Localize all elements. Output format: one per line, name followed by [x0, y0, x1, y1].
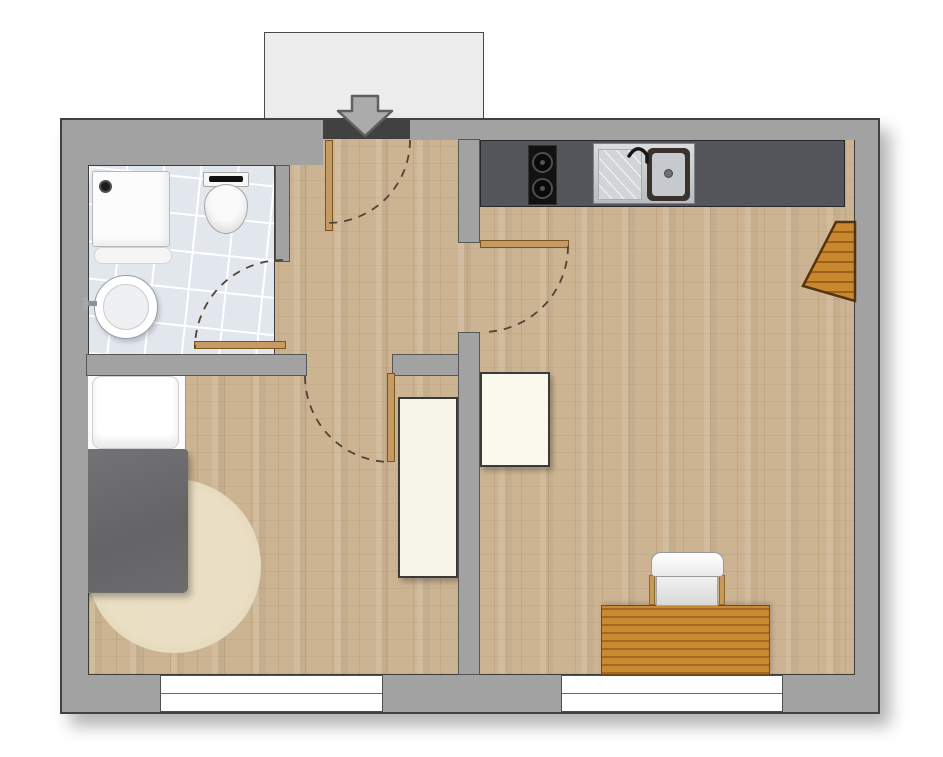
wall-central-lower	[458, 332, 480, 675]
wardrobe	[398, 397, 458, 578]
wall-east	[855, 120, 878, 712]
washbasin	[94, 275, 158, 339]
wall-central-upper	[458, 139, 480, 243]
sink-drain-icon	[664, 169, 673, 178]
wall-south-middle	[383, 675, 561, 712]
burner-icon	[532, 178, 553, 199]
floor-drain-icon	[99, 180, 112, 193]
chair-seat	[656, 574, 718, 606]
sink-basin	[647, 148, 690, 201]
bathroom-door-leaf	[194, 341, 286, 349]
burner-icon	[532, 152, 553, 173]
sink-basin-inner	[652, 153, 685, 196]
bath-mat	[94, 247, 172, 264]
desk	[601, 605, 770, 675]
wall-bathroom-south	[86, 354, 307, 376]
floor-plan	[0, 0, 943, 757]
basin-faucet-icon	[83, 297, 88, 310]
wall-south-left	[62, 675, 160, 712]
cooktop	[528, 145, 557, 205]
chair-armrest	[649, 575, 655, 605]
chair-backrest	[651, 552, 724, 577]
kitchen-sink	[593, 143, 695, 204]
bedroom-door-leaf	[387, 373, 395, 462]
sink-drainboard	[598, 149, 642, 200]
wall-north-left	[62, 120, 323, 165]
kitchen-counter	[480, 140, 845, 207]
kitchen-door-leaf	[480, 240, 569, 248]
toilet-lid-line	[209, 176, 243, 182]
entry-door-leaf	[325, 140, 333, 231]
living-room-window	[561, 675, 783, 712]
wall-north-right	[410, 120, 878, 140]
bed-pillow	[92, 376, 179, 449]
washbasin-inner	[103, 284, 149, 330]
window-pane-line	[562, 693, 782, 694]
shower-tray	[92, 171, 170, 247]
wall-west	[62, 120, 88, 712]
wall-south-right	[783, 675, 878, 712]
chair-armrest	[719, 575, 725, 605]
bed-blanket	[81, 449, 188, 592]
bedroom-window	[160, 675, 383, 712]
cabinet	[480, 372, 550, 467]
window-pane-line	[161, 693, 382, 694]
wall-bathroom-east	[275, 165, 290, 262]
